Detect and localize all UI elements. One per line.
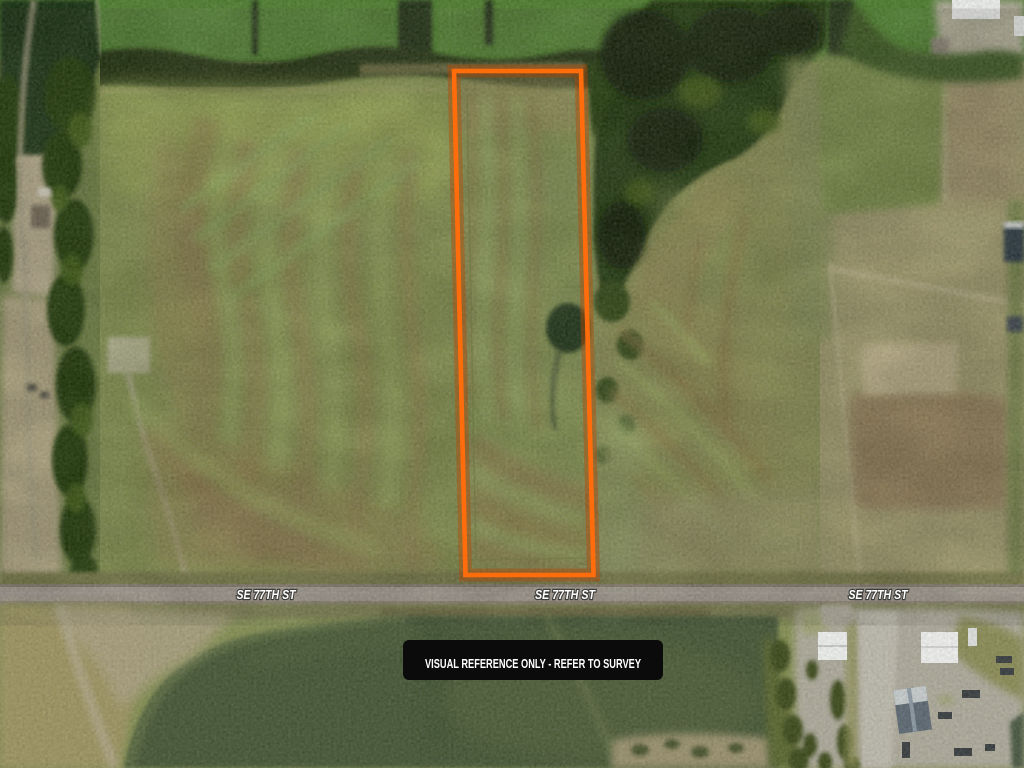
svg-text:SE 77TH ST: SE 77TH ST [237,587,297,602]
svg-text:SE 77TH ST: SE 77TH ST [535,587,596,602]
svg-text:VISUAL REFERENCE ONLY - REFER: VISUAL REFERENCE ONLY - REFER TO SURVEY [425,656,641,671]
svg-text:SE 77TH ST: SE 77TH ST [849,587,909,602]
